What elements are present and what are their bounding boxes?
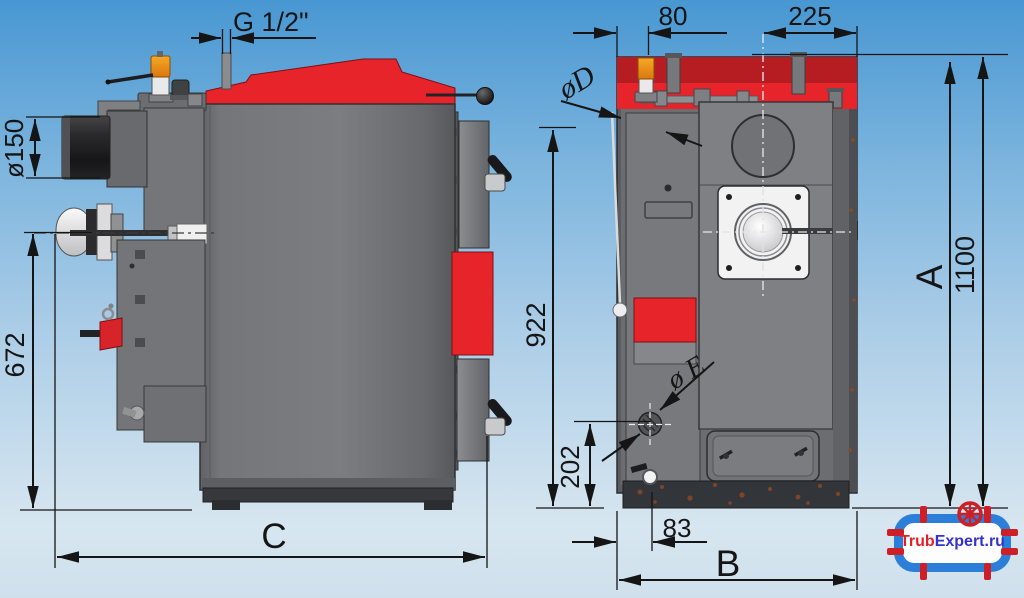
heat-exchanger-box bbox=[144, 108, 204, 233]
top-clamp bbox=[188, 94, 202, 106]
side-view bbox=[56, 51, 514, 510]
rear-right-strip bbox=[833, 109, 851, 485]
label-83: 83 bbox=[655, 514, 699, 543]
base-left bbox=[203, 488, 453, 502]
rear-view bbox=[612, 52, 858, 508]
leg-front bbox=[212, 500, 240, 510]
lower-side-box bbox=[144, 386, 206, 442]
chain-ball bbox=[613, 303, 627, 317]
label-922: 922 bbox=[522, 295, 554, 355]
lower-door bbox=[457, 359, 489, 461]
g-half-connection-pipe bbox=[222, 53, 231, 89]
label-g-thread: G 1/2" bbox=[233, 8, 333, 38]
logo-flange bbox=[920, 563, 927, 580]
label-672: 672 bbox=[1, 326, 33, 384]
logo-text: TrubExpert.ru bbox=[896, 533, 1009, 551]
boiler-dimensional-drawing: G 1/2" ø150 672 C 80 225 øD 922 202 ø E … bbox=[0, 0, 1024, 598]
dim-80-ext bbox=[617, 26, 649, 57]
label-b: B bbox=[712, 544, 744, 585]
logo-text-blue: Expert.ru bbox=[935, 533, 1005, 550]
logo-text-red: Trub bbox=[900, 533, 935, 550]
label-1100: 1100 bbox=[951, 228, 983, 302]
trubexpert-watermark: TrubExpert.ru bbox=[890, 498, 1022, 592]
logo-flange bbox=[920, 506, 927, 523]
logo-valve-wheel-icon bbox=[952, 498, 988, 532]
panel-screw bbox=[130, 264, 135, 269]
red-jacket-top-side bbox=[206, 59, 455, 105]
technical-drawing-canvas bbox=[0, 0, 1024, 598]
label-225: 225 bbox=[782, 2, 838, 31]
regulator-ball-handle bbox=[477, 88, 494, 105]
leg-rear bbox=[424, 500, 452, 510]
label-flue-diameter: ø150 bbox=[0, 120, 32, 178]
label-a: A bbox=[910, 257, 948, 297]
label-202: 202 bbox=[556, 437, 588, 497]
logo-flange bbox=[984, 563, 991, 580]
middle-door-red bbox=[452, 252, 493, 355]
label-80: 80 bbox=[655, 2, 691, 31]
label-c: C bbox=[258, 518, 290, 557]
valve-lever bbox=[108, 75, 153, 82]
rear-base bbox=[623, 481, 849, 508]
boiler-body-side bbox=[200, 104, 455, 490]
dim-g-half-ext bbox=[223, 29, 231, 54]
rear-red-door bbox=[634, 298, 696, 342]
chimney-rim bbox=[62, 116, 70, 179]
panel-hole bbox=[665, 185, 672, 192]
drain-valve-red bbox=[80, 304, 122, 351]
smoke-box bbox=[107, 111, 147, 187]
